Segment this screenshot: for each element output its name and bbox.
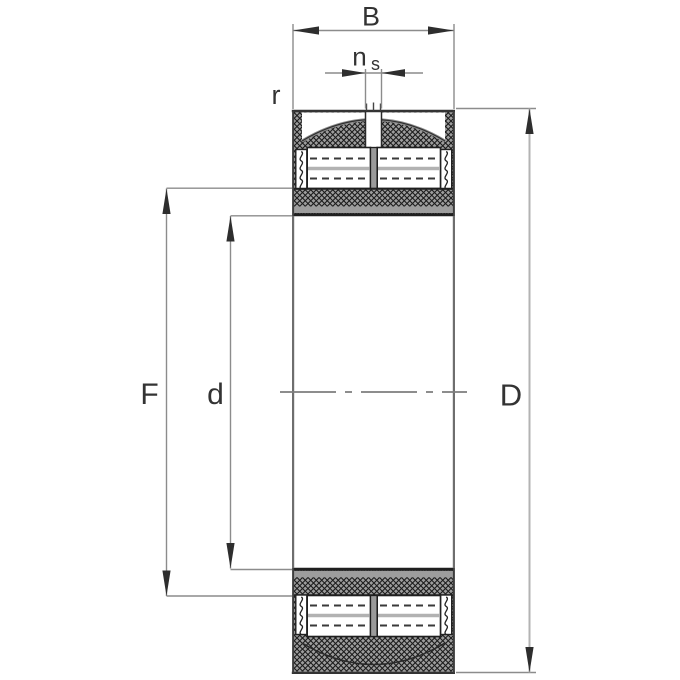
lubrication-hole [366, 112, 382, 148]
ns-arrow-right [382, 69, 406, 77]
bearing-bottom-section [292, 568, 455, 673]
D-label: D [500, 378, 522, 413]
D-extension-lines [456, 109, 536, 673]
lubrication-hole-ticks [367, 103, 381, 111]
F-arrow-bottom [162, 571, 170, 597]
bottom-rollers [307, 596, 440, 637]
bottom-bore-shade [294, 571, 453, 578]
center-rib [371, 596, 378, 637]
bearing-top-section [292, 103, 455, 217]
dimension-ns: n s [325, 42, 423, 109]
top-bore-shade [294, 207, 453, 214]
B-arrow-left [293, 26, 319, 34]
d-arrow-top [226, 216, 234, 242]
F-arrow-top [162, 189, 170, 215]
D-arrow-top [525, 109, 533, 135]
bearing-cross-section-drawing: B n s r F d D [0, 0, 680, 680]
dimension-d: d [207, 216, 292, 570]
B-label: B [362, 2, 380, 32]
B-arrow-right [428, 26, 454, 34]
top-rollers [307, 148, 440, 189]
D-arrow-bottom [525, 647, 533, 673]
r-label: r [272, 80, 281, 110]
F-extension-lines [167, 188, 293, 596]
bearing-drawing-canvas: B n s r F d D [0, 0, 680, 680]
d-label: d [207, 378, 224, 411]
d-arrow-bottom [226, 543, 234, 569]
center-rib [371, 148, 378, 189]
dimension-D: D [456, 109, 536, 673]
ns-label-subscript: s [371, 54, 380, 74]
F-label: F [140, 378, 158, 411]
ns-label: n [352, 42, 366, 72]
